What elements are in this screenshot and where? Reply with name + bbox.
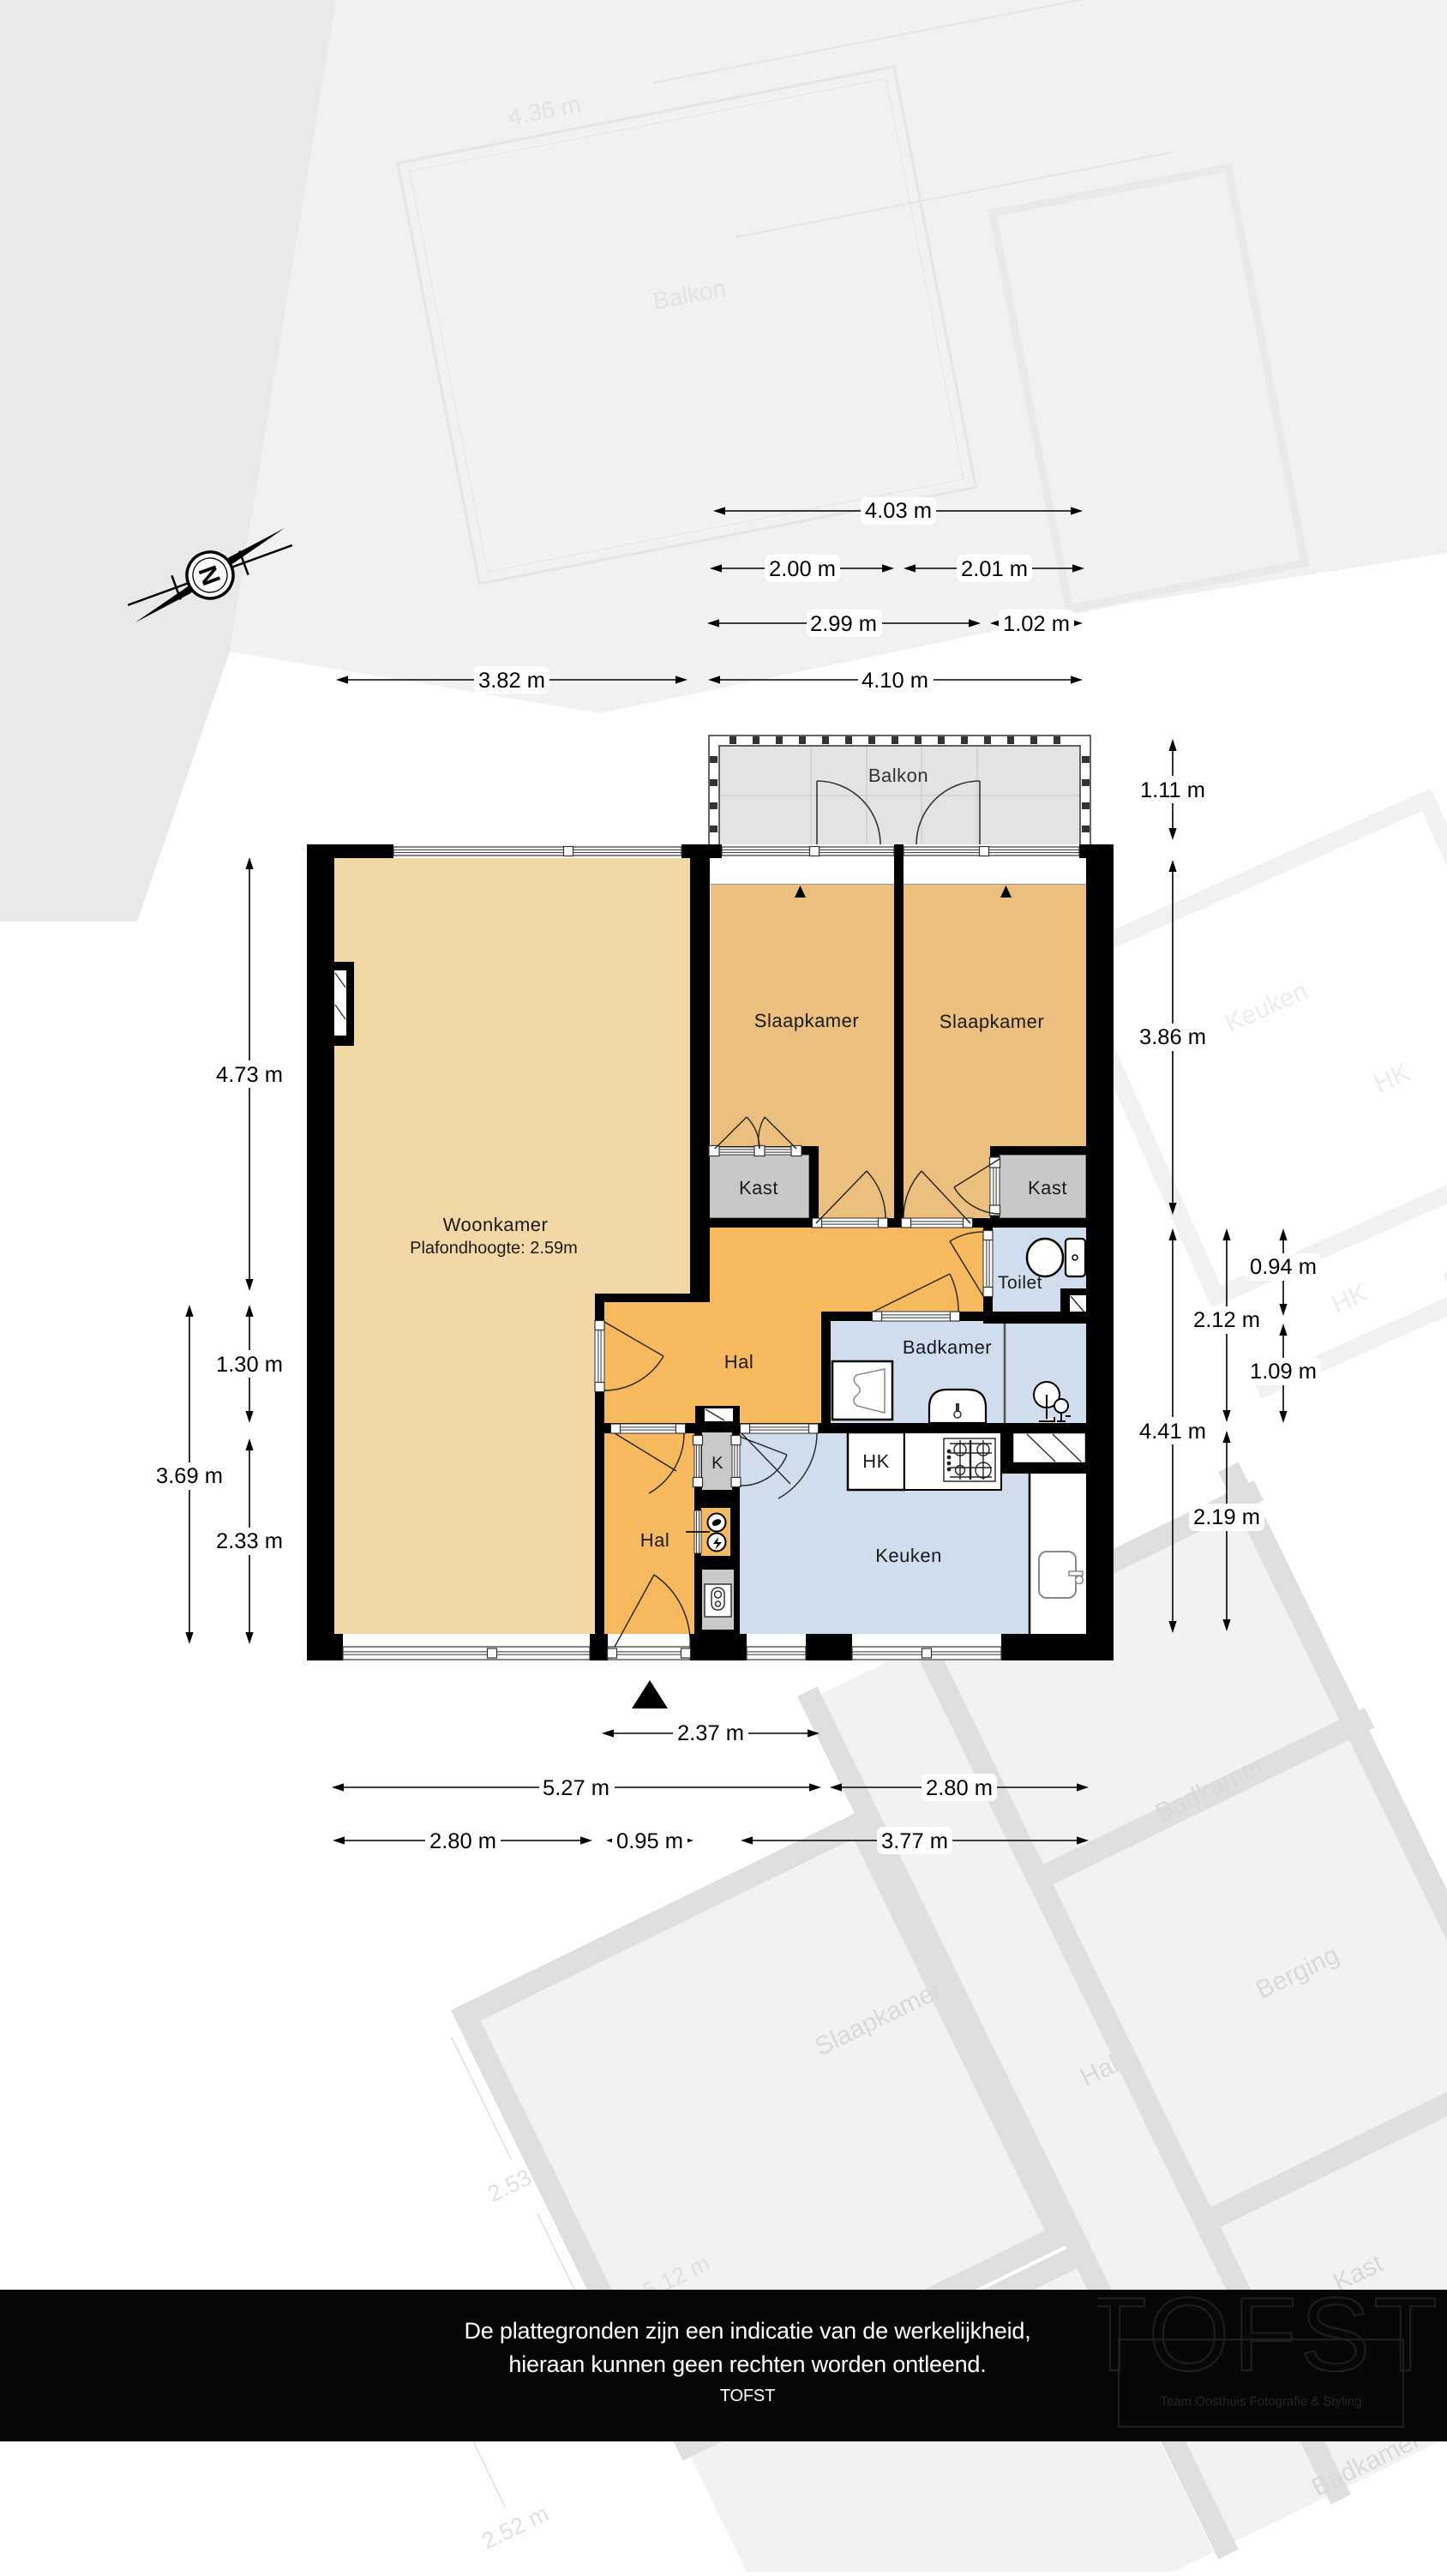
svg-text:HK: HK: [862, 1450, 890, 1472]
svg-text:5.27 m: 5.27 m: [543, 1776, 609, 1800]
svg-text:Keuken: Keuken: [875, 1545, 942, 1566]
svg-text:3.82 m: 3.82 m: [478, 669, 545, 693]
svg-text:3.77 m: 3.77 m: [881, 1829, 948, 1853]
svg-text:Plafondhoogte: 2.59m: Plafondhoogte: 2.59m: [410, 1239, 578, 1258]
svg-text:Badkamer: Badkamer: [903, 1336, 992, 1358]
svg-text:3.69 m: 3.69 m: [156, 1464, 223, 1488]
svg-text:Slaapkamer: Slaapkamer: [940, 1011, 1044, 1032]
svg-text:0.94 m: 0.94 m: [1250, 1255, 1317, 1279]
svg-text:1.02 m: 1.02 m: [1003, 612, 1070, 636]
svg-text:4.10 m: 4.10 m: [862, 669, 928, 693]
svg-text:4.73 m: 4.73 m: [216, 1063, 283, 1087]
svg-text:K: K: [711, 1454, 723, 1473]
svg-text:4.41 m: 4.41 m: [1139, 1420, 1206, 1444]
svg-text:0.95 m: 0.95 m: [616, 1829, 683, 1853]
svg-text:2.12 m: 2.12 m: [1193, 1308, 1260, 1332]
svg-text:2.37 m: 2.37 m: [677, 1721, 744, 1745]
svg-text:2.80 m: 2.80 m: [926, 1776, 993, 1800]
svg-text:2.33 m: 2.33 m: [216, 1529, 283, 1553]
svg-text:Hal: Hal: [640, 1529, 670, 1551]
svg-text:Balkon: Balkon: [868, 765, 928, 786]
svg-text:1.11 m: 1.11 m: [1140, 778, 1205, 802]
svg-text:Slaapkamer: Slaapkamer: [754, 1010, 859, 1031]
svg-text:4.03 m: 4.03 m: [865, 499, 932, 523]
svg-text:1.09 m: 1.09 m: [1250, 1360, 1317, 1384]
svg-text:2.01 m: 2.01 m: [961, 557, 1028, 581]
svg-text:Kast: Kast: [1028, 1177, 1067, 1198]
svg-text:2.80 m: 2.80 m: [429, 1829, 496, 1853]
svg-text:2.99 m: 2.99 m: [810, 612, 877, 636]
svg-text:2.19 m: 2.19 m: [1193, 1505, 1260, 1529]
svg-text:Hal: Hal: [724, 1351, 754, 1372]
svg-text:1.30 m: 1.30 m: [216, 1353, 283, 1377]
svg-text:Kast: Kast: [739, 1177, 778, 1198]
svg-text:Toilet: Toilet: [998, 1273, 1042, 1293]
svg-text:3.86 m: 3.86 m: [1139, 1025, 1206, 1049]
svg-text:Woonkamer: Woonkamer: [443, 1214, 549, 1235]
svg-text:2.00 m: 2.00 m: [769, 557, 836, 581]
